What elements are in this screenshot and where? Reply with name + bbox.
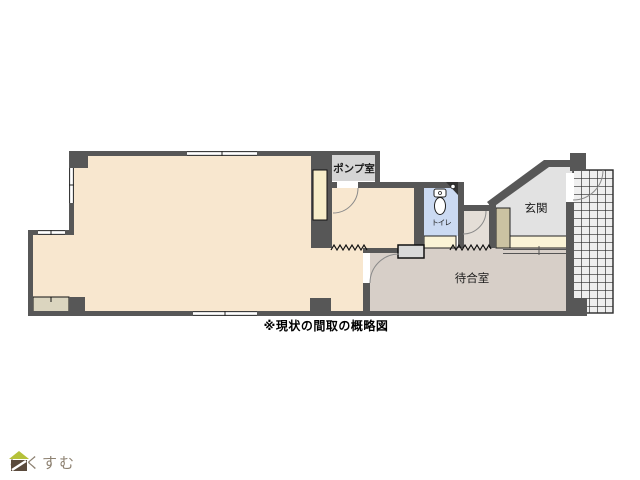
pillar: [69, 151, 88, 168]
floorplan-canvas: ポンプ室 玄関 待合室 トイレ ※現状の間取の概略図 らくすむ: [0, 0, 640, 480]
window-top: [187, 151, 257, 156]
step-strip-toilet: [424, 236, 456, 248]
site-logo: らくすむ: [8, 450, 76, 474]
toilet-icon: [434, 189, 446, 215]
pillar: [69, 297, 85, 312]
shoe-cabinet: [496, 208, 510, 248]
closet-inset: [313, 170, 327, 220]
window-left: [69, 168, 74, 203]
pillar: [566, 298, 587, 316]
pillar: [310, 298, 331, 312]
pillar: [570, 153, 586, 171]
room-label-waiting: 待合室: [450, 270, 494, 286]
room-label-entrance: 玄関: [520, 200, 552, 216]
room-label-pump: ポンプ室: [330, 161, 378, 176]
counter-box: [398, 245, 424, 258]
porch-tile-area: [573, 170, 613, 313]
floorplan-svg: [0, 0, 640, 480]
step-strip-entrance: [505, 236, 567, 248]
window-bottom: [193, 311, 257, 316]
house-icon: [8, 450, 30, 472]
plan-caption: ※現状の間取の概略図: [248, 317, 404, 334]
room-label-toilet: トイレ: [430, 217, 452, 228]
window-notch: [38, 230, 65, 235]
